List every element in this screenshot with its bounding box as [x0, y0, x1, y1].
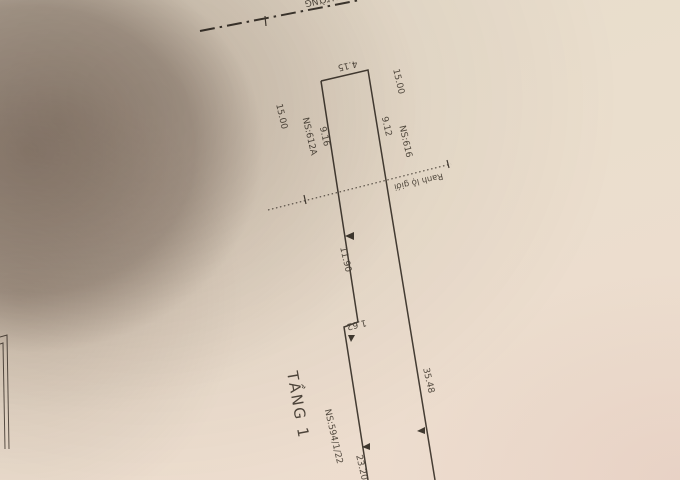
arrowhead-left-mid — [345, 232, 354, 240]
dim-right-front-depth: 9.12 — [379, 116, 393, 138]
floor-title: TẦNG 1 — [283, 368, 316, 440]
parcel-number-label: NS:594/1/22 — [322, 408, 344, 465]
right-neighbor-label: NS:616 — [396, 125, 413, 159]
road-centerline — [200, 0, 360, 31]
dim-left-middle-depth: 11.90 — [337, 246, 353, 274]
boundary-tick-right — [447, 160, 449, 168]
arrowhead-right-side — [417, 427, 425, 434]
photographed-survey-plan: ĐƯỜNG Ranh lộ giới 4.15 15.00 15.00 9.16… — [0, 0, 680, 480]
left-neighbor-label: NS:612A — [300, 117, 319, 158]
road-boundary-line — [268, 164, 451, 210]
dim-left-rear-depth: 23.20 — [353, 454, 369, 480]
boundary-tick-left — [304, 195, 306, 204]
plan-drawing: ĐƯỜNG Ranh lộ giới 4.15 15.00 15.00 9.16… — [0, 0, 680, 480]
dim-right-total-depth: 35.48 — [420, 367, 436, 395]
dim-right-setback: 15.00 — [390, 68, 406, 96]
dim-side-step: 1.62 — [346, 317, 368, 331]
dim-left-setback: 15.00 — [273, 103, 289, 131]
sheet-frame-inner — [0, 343, 5, 449]
parcel-outline-right — [321, 70, 435, 480]
road-boundary-label: Ranh lộ giới — [393, 170, 444, 192]
dim-front-width: 4.15 — [337, 58, 359, 72]
arrowhead-step — [348, 335, 355, 342]
